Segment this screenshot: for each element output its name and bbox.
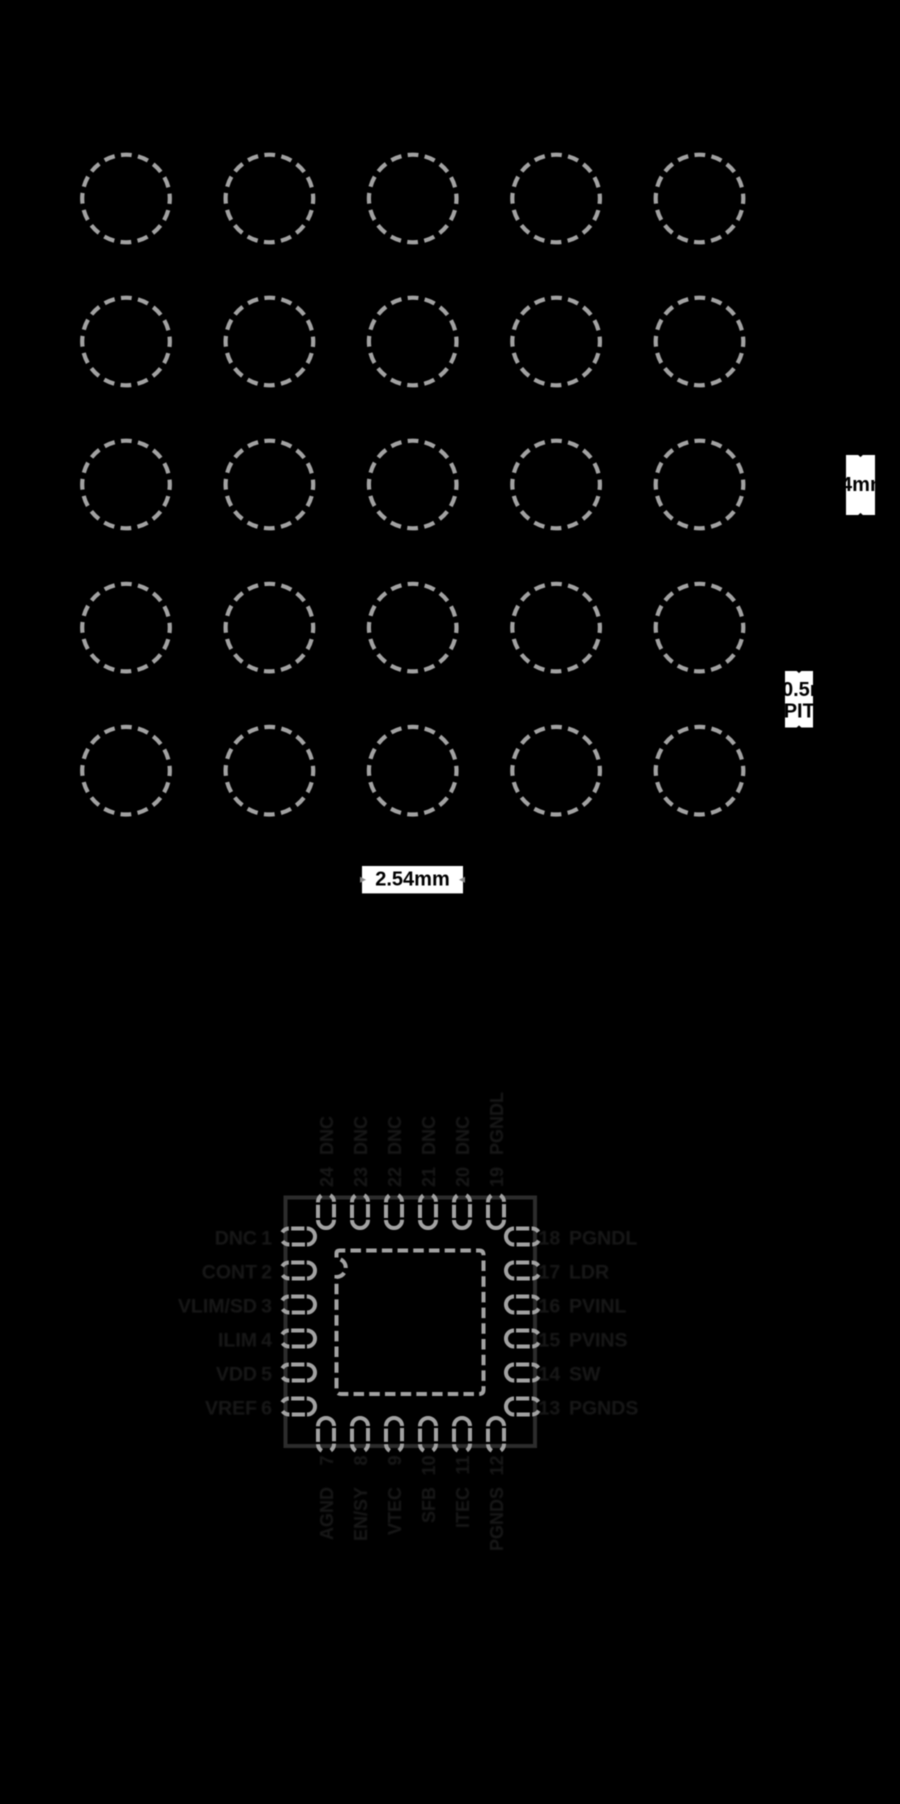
svg-text:PGNDL: PGNDL xyxy=(569,1228,637,1250)
svg-text:10: 10 xyxy=(419,1456,439,1476)
svg-text:7: 7 xyxy=(317,1456,337,1466)
svg-text:1: 1 xyxy=(261,1228,272,1250)
svg-text:5: 5 xyxy=(261,1364,272,1386)
svg-text:VTEC: VTEC xyxy=(385,1487,405,1535)
svg-text:2: 2 xyxy=(261,1262,272,1284)
svg-text:0.5mm: 0.5mm xyxy=(782,679,845,701)
svg-text:PITCH: PITCH xyxy=(784,701,844,723)
svg-text:9: 9 xyxy=(385,1456,405,1466)
svg-text:DNC: DNC xyxy=(453,1116,473,1155)
svg-text:23: 23 xyxy=(351,1167,371,1187)
svg-text:EN/SY: EN/SY xyxy=(351,1487,371,1541)
svg-text:DNC: DNC xyxy=(385,1116,405,1155)
svg-text:19: 19 xyxy=(487,1167,507,1187)
svg-text:SFB: SFB xyxy=(419,1487,439,1523)
svg-text:VLIM/SD: VLIM/SD xyxy=(178,1296,257,1318)
svg-text:AGND: AGND xyxy=(317,1487,337,1540)
svg-text:15: 15 xyxy=(539,1330,561,1352)
svg-text:4: 4 xyxy=(261,1330,272,1352)
svg-text:VREF: VREF xyxy=(205,1398,257,1420)
svg-text:LDR: LDR xyxy=(569,1262,609,1284)
svg-text:8: 8 xyxy=(351,1456,371,1466)
svg-text:2.54mm: 2.54mm xyxy=(813,474,888,496)
svg-text:ITEC: ITEC xyxy=(453,1487,473,1528)
svg-text:PVINS: PVINS xyxy=(569,1330,628,1352)
svg-text:2.54mm: 2.54mm xyxy=(375,869,450,891)
svg-text:PGNDL: PGNDL xyxy=(487,1092,507,1155)
svg-text:SW: SW xyxy=(569,1364,601,1386)
svg-text:PGNDS: PGNDS xyxy=(569,1398,638,1420)
svg-text:DNC: DNC xyxy=(317,1116,337,1155)
svg-text:ILIM: ILIM xyxy=(218,1330,257,1352)
svg-text:VDD: VDD xyxy=(216,1364,257,1386)
svg-text:16: 16 xyxy=(539,1296,561,1318)
svg-text:DNC: DNC xyxy=(351,1116,371,1155)
svg-text:24: 24 xyxy=(317,1167,337,1187)
svg-text:DNC: DNC xyxy=(215,1228,257,1250)
svg-text:18: 18 xyxy=(539,1228,561,1250)
svg-text:13: 13 xyxy=(539,1398,561,1420)
svg-text:17: 17 xyxy=(539,1262,561,1284)
svg-text:DNC: DNC xyxy=(419,1116,439,1155)
svg-text:20: 20 xyxy=(453,1167,473,1187)
svg-text:11: 11 xyxy=(453,1456,473,1475)
svg-text:21: 21 xyxy=(419,1167,439,1187)
svg-text:PVINL: PVINL xyxy=(569,1296,627,1318)
svg-text:CONT: CONT xyxy=(202,1262,257,1284)
svg-text:PGNDS: PGNDS xyxy=(487,1487,507,1551)
svg-text:14: 14 xyxy=(539,1364,561,1386)
svg-text:22: 22 xyxy=(385,1167,405,1187)
svg-text:3: 3 xyxy=(261,1296,272,1318)
svg-text:6: 6 xyxy=(261,1398,272,1420)
svg-text:12: 12 xyxy=(487,1456,507,1476)
